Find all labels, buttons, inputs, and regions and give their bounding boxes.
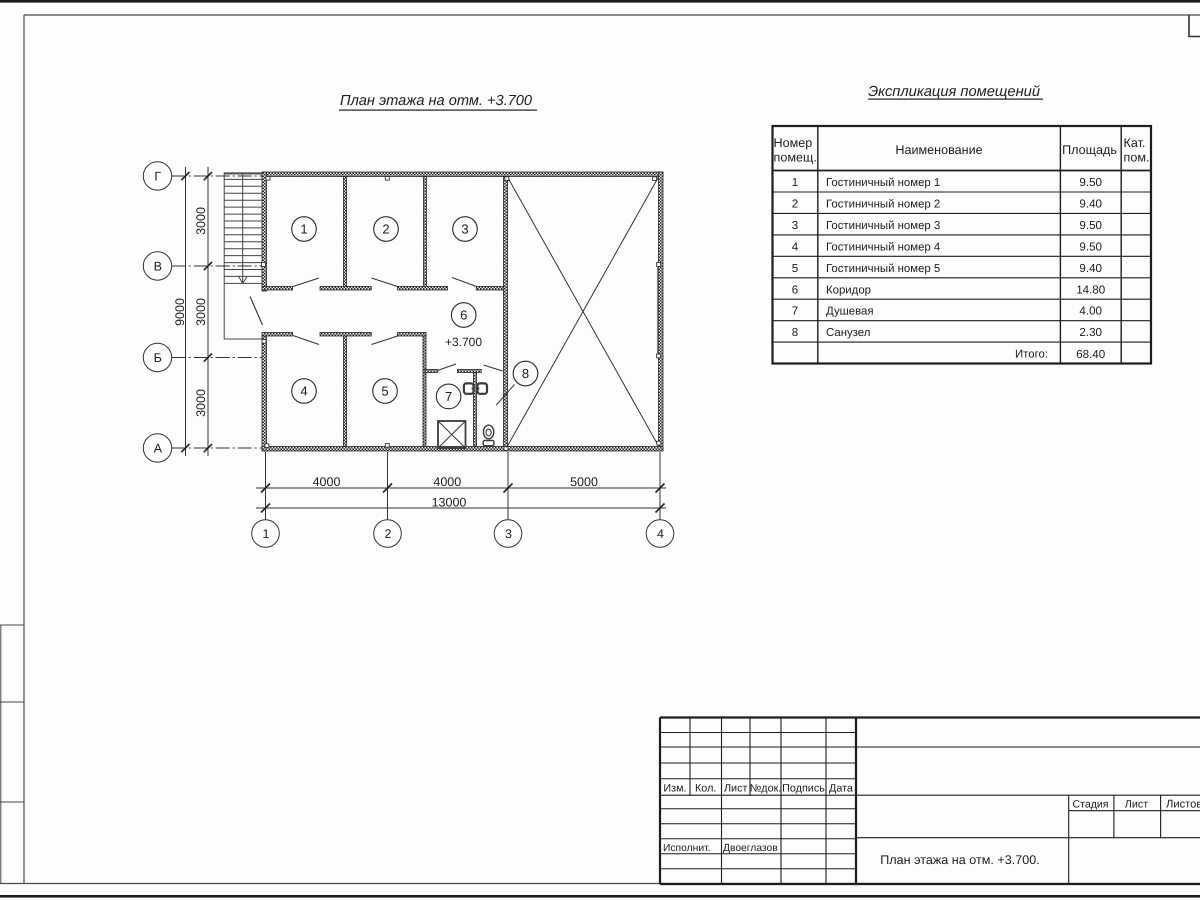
- svg-text:Б: Б: [154, 351, 162, 365]
- svg-text:4000: 4000: [433, 475, 461, 489]
- svg-text:9.50: 9.50: [1079, 219, 1102, 232]
- svg-text:План этажа на отм. +3.700: План этажа на отм. +3.700: [340, 93, 532, 109]
- svg-text:6: 6: [792, 283, 798, 296]
- svg-text:А: А: [154, 441, 163, 455]
- svg-text:В: В: [154, 259, 162, 273]
- svg-text:9.50: 9.50: [1079, 176, 1102, 189]
- svg-text:План этажа на отм. +3.700.: План этажа на отм. +3.700.: [880, 853, 1040, 867]
- svg-text:Гостиничный номер 5: Гостиничный номер 5: [826, 263, 940, 275]
- svg-text:Номер: Номер: [774, 136, 813, 150]
- svg-text:Наименование: Наименование: [895, 143, 982, 157]
- svg-text:2.30: 2.30: [1079, 326, 1102, 339]
- svg-text:2: 2: [792, 198, 798, 211]
- svg-text:Кол.: Кол.: [695, 783, 716, 795]
- svg-text:5: 5: [792, 262, 798, 275]
- svg-text:3: 3: [792, 219, 798, 232]
- svg-text:4: 4: [657, 527, 664, 541]
- svg-text:3: 3: [505, 527, 512, 541]
- svg-text:1: 1: [300, 222, 307, 237]
- svg-text:7: 7: [792, 305, 798, 318]
- svg-text:Экспликация помещений: Экспликация помещений: [868, 84, 1040, 100]
- svg-text:2: 2: [382, 222, 389, 237]
- svg-text:Кат.: Кат.: [1124, 136, 1146, 150]
- svg-text:Подпись: Подпись: [782, 783, 825, 795]
- svg-text:9000: 9000: [173, 298, 187, 326]
- svg-text:Санузел: Санузел: [826, 327, 870, 339]
- svg-text:Г: Г: [154, 169, 161, 183]
- svg-text:Дата: Дата: [829, 783, 853, 795]
- svg-text:пом.: пом.: [1124, 151, 1150, 165]
- svg-text:2: 2: [385, 527, 392, 541]
- svg-text:Площадь: Площадь: [1062, 143, 1117, 157]
- svg-text:Лист: Лист: [1125, 799, 1149, 811]
- svg-text:3: 3: [461, 222, 468, 237]
- svg-text:Гостиничный номер 1: Гостиничный номер 1: [826, 177, 940, 189]
- svg-text:Итого:: Итого:: [1015, 348, 1048, 360]
- svg-text:Гостиничный номер 2: Гостиничный номер 2: [826, 199, 940, 211]
- svg-text:Лист: Лист: [724, 783, 748, 795]
- svg-text:4000: 4000: [313, 475, 341, 489]
- svg-text:5000: 5000: [570, 475, 598, 489]
- svg-text:8: 8: [522, 366, 529, 381]
- svg-text:Коридор: Коридор: [826, 284, 871, 296]
- svg-text:9.40: 9.40: [1079, 198, 1102, 211]
- svg-text:Душевая: Душевая: [826, 306, 874, 318]
- svg-text:3000: 3000: [194, 207, 208, 235]
- svg-text:1: 1: [263, 527, 270, 541]
- svg-text:8: 8: [792, 326, 798, 339]
- svg-text:4.00: 4.00: [1079, 305, 1102, 318]
- svg-text:1: 1: [792, 176, 798, 189]
- svg-text:Гостиничный номер 3: Гостиничный номер 3: [826, 220, 940, 232]
- svg-text:7: 7: [445, 389, 452, 404]
- svg-text:3000: 3000: [194, 389, 208, 417]
- svg-text:Гостиничный номер 4: Гостиничный номер 4: [826, 241, 940, 253]
- svg-text:3000: 3000: [194, 298, 208, 326]
- svg-text:9.40: 9.40: [1079, 262, 1102, 275]
- svg-text:14.80: 14.80: [1076, 283, 1105, 296]
- svg-text:6: 6: [460, 308, 467, 323]
- svg-text:68.40: 68.40: [1076, 348, 1105, 361]
- svg-text:Исполнит.: Исполнит.: [663, 843, 711, 854]
- svg-text:Стадия: Стадия: [1072, 799, 1108, 811]
- svg-text:13000: 13000: [432, 496, 467, 510]
- svg-text:помещ.: помещ.: [774, 151, 817, 165]
- svg-text:9.50: 9.50: [1079, 240, 1102, 253]
- svg-text:Изм.: Изм.: [663, 783, 686, 795]
- svg-text:Листов: Листов: [1166, 799, 1200, 811]
- svg-text:5: 5: [381, 384, 388, 399]
- svg-text:+3.700: +3.700: [445, 335, 482, 349]
- svg-text:4: 4: [300, 384, 307, 399]
- svg-text:Двоеглазов: Двоеглазов: [723, 843, 778, 854]
- svg-text:№док.: №док.: [750, 783, 782, 795]
- svg-text:4: 4: [792, 240, 799, 253]
